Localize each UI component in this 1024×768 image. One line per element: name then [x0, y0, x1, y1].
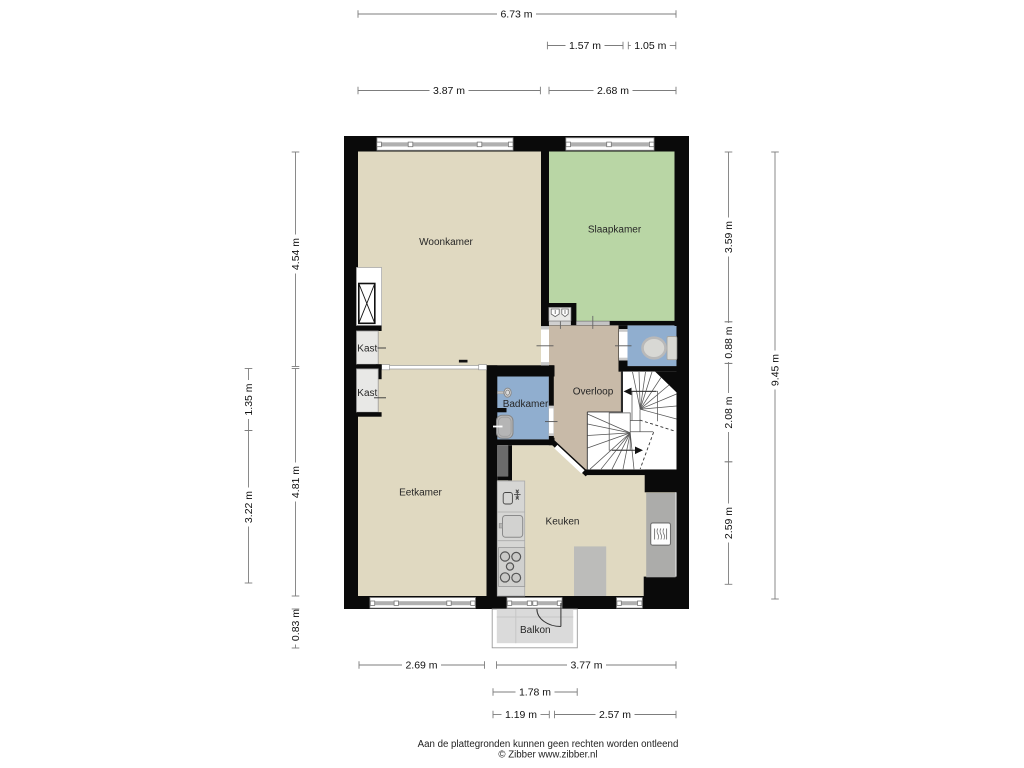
svg-text:6.73 m: 6.73 m: [500, 9, 532, 21]
svg-text:3.77 m: 3.77 m: [570, 660, 602, 672]
svg-text:2.68 m: 2.68 m: [597, 85, 629, 97]
svg-text:Kast: Kast: [357, 344, 377, 355]
svg-text:3.22 m: 3.22 m: [243, 491, 255, 523]
svg-text:0.83 m: 0.83 m: [290, 609, 302, 641]
svg-text:2.57 m: 2.57 m: [599, 709, 631, 721]
svg-text:Slaapkamer: Slaapkamer: [588, 225, 642, 236]
svg-text:4.54 m: 4.54 m: [290, 238, 302, 270]
svg-text:1.78 m: 1.78 m: [519, 687, 551, 699]
svg-text:Overloop: Overloop: [573, 387, 614, 398]
svg-text:3.87 m: 3.87 m: [433, 85, 465, 97]
svg-text:Badkamer: Badkamer: [503, 399, 549, 410]
svg-text:4.81 m: 4.81 m: [290, 466, 302, 498]
svg-text:2.08 m: 2.08 m: [723, 396, 735, 428]
svg-text:Woonkamer: Woonkamer: [419, 237, 473, 248]
svg-text:1.05 m: 1.05 m: [634, 40, 666, 52]
svg-text:9.45 m: 9.45 m: [770, 354, 782, 386]
svg-text:1.35 m: 1.35 m: [243, 383, 255, 415]
svg-text:Eetkamer: Eetkamer: [399, 487, 442, 498]
svg-text:3.59 m: 3.59 m: [723, 221, 735, 253]
svg-text:1.57 m: 1.57 m: [569, 40, 601, 52]
svg-text:1.19 m: 1.19 m: [505, 709, 537, 721]
svg-text:Balkon: Balkon: [520, 625, 551, 636]
svg-text:Keuken: Keuken: [546, 517, 580, 528]
svg-text:© Zibber www.zibber.nl: © Zibber www.zibber.nl: [498, 749, 597, 760]
svg-text:2.69 m: 2.69 m: [405, 660, 437, 672]
svg-text:2.59 m: 2.59 m: [723, 507, 735, 539]
svg-text:0.88 m: 0.88 m: [723, 326, 735, 358]
